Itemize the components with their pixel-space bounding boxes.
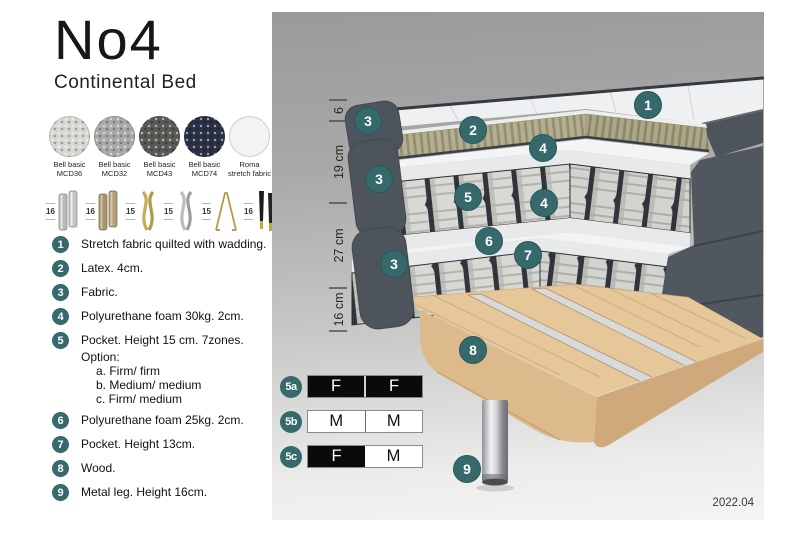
leg-height: 16 [86,200,95,223]
fabric-swatches: Bell basicMCD36 Bell basicMCD32 Bell bas… [48,116,272,178]
bed-cutaway-panel: 6 19 cm 27 cm 16 cm 1 2 3 4 3 5 4 6 7 3 … [272,12,764,520]
swatch-label: Bell basic [53,160,85,169]
firmness-table: 5a F F 5b M M 5c F M [280,375,423,480]
dimension-marks: 6 19 cm 27 cm 16 cm [329,100,347,331]
leg-height: 16 [244,200,253,223]
callout-9: 9 [454,456,481,483]
list-item: 3 Fabric. [52,284,274,301]
svg-text:7: 7 [524,247,532,263]
callout-2: 2 [460,117,487,144]
fabric-swatch: Romastretch fabric [228,116,271,178]
page-title: No4 [54,10,197,70]
leg-option-hairpin-gold: 15 [202,186,240,236]
callout-3: 3 [381,251,408,278]
dimension-label: 6 [332,107,346,114]
item-number-badge: 1 [52,236,69,253]
leg-option-cylinder-silver: 16 [46,186,82,236]
callout-8: 8 [460,337,487,364]
svg-text:3: 3 [375,171,383,187]
leg-height: 15 [164,200,173,223]
twisted-leg-icon [136,188,160,234]
callout-5: 5 [455,184,482,211]
cylinder-leg-icon [56,188,82,234]
dimension-label: 16 cm [332,292,346,326]
fabric-swatch-circle [184,116,225,157]
brand-block: No4 Continental Bed [54,10,197,94]
list-item: 1 Stretch fabric quilted with wadding. [52,236,274,253]
swatch-label: Bell basic [188,160,220,169]
firmness-bar: F F [307,375,423,398]
pocket-option: c. Firm/ medium [96,392,274,406]
list-item: 9 Metal leg. Height 16cm. [52,484,274,501]
fabric-swatch-circle [139,116,180,157]
leg-options: 16 16 15 15 15 [46,186,278,236]
svg-text:6: 6 [485,233,493,249]
firmness-bar: M M [307,410,423,433]
fabric-swatch: Bell basicMCD32 [93,116,136,178]
item-text: Stretch fabric quilted with wadding. [81,236,266,253]
svg-text:8: 8 [469,342,477,358]
item-number-badge: 7 [52,436,69,453]
swatch-label: Bell basic [143,160,175,169]
item-text: Polyurethane foam 25kg. 2cm. [81,412,244,429]
firmness-cell: M [365,411,423,432]
pocket-option: a. Firm/ firm [96,364,274,378]
firmness-cell: F [364,376,422,397]
firmness-row-5a: 5a F F [280,375,423,398]
leg-height: 15 [126,200,135,223]
svg-text:3: 3 [390,256,398,272]
list-item: 6 Polyurethane foam 25kg. 2cm. [52,412,274,429]
item-number-badge: 9 [52,484,69,501]
callout-1: 1 [635,92,662,119]
leg-height: 16 [46,200,55,223]
item-number-badge: 5 [52,332,69,349]
fabric-swatch: Bell basicMCD74 [183,116,226,178]
cylinder-leg-icon [96,188,122,234]
firmness-row-badge: 5a [280,376,302,398]
swatch-label: Bell basic [98,160,130,169]
leg-height: 15 [202,200,211,223]
callout-6: 6 [476,228,503,255]
list-item: 2 Latex. 4cm. [52,260,274,277]
list-item: 8 Wood. [52,460,274,477]
list-item: 5 Pocket. Height 15 cm. 7zones. Option: [52,332,274,366]
callout-3: 3 [366,166,393,193]
svg-text:2: 2 [469,122,477,138]
item-text: Wood. [81,460,115,477]
item-number-badge: 3 [52,284,69,301]
firmness-cell: M [365,446,422,467]
svg-text:1: 1 [644,97,652,113]
callout-4: 4 [531,190,558,217]
list-item: 4 Polyurethane foam 30kg. 2cm. [52,308,274,325]
item-number-badge: 8 [52,460,69,477]
list-item: 7 Pocket. Height 13cm. [52,436,274,453]
item-text: Metal leg. Height 16cm. [81,484,207,501]
firmness-row-5b: 5b M M [280,410,423,433]
svg-text:9: 9 [463,461,471,477]
item-number-badge: 6 [52,412,69,429]
firmness-bar: F M [307,445,423,468]
fabric-swatch-circle [229,116,270,157]
fabric-swatch: Bell basicMCD36 [48,116,91,178]
leg-option-twisted-gold: 15 [126,186,160,236]
fabric-swatch-circle [49,116,90,157]
svg-text:5: 5 [464,189,472,205]
item-text: Pocket. Height 15 cm. 7zones. Option: [81,332,274,366]
version-stamp: 2022.04 [712,497,754,509]
svg-text:4: 4 [540,195,548,211]
firmness-row-badge: 5c [280,446,302,468]
pocket-option: b. Medium/ medium [96,378,274,392]
pocket-options: a. Firm/ firm b. Medium/ medium c. Firm/… [96,364,274,406]
item-text: Latex. 4cm. [81,260,143,277]
firmness-row-badge: 5b [280,411,302,433]
item-number-badge: 2 [52,260,69,277]
dimension-label: 27 cm [332,228,346,262]
hairpin-leg-icon [212,188,240,234]
leg-option-twisted-silver: 15 [164,186,198,236]
fabric-swatch-circle [94,116,135,157]
item-text: Polyurethane foam 30kg. 2cm. [81,308,244,325]
dimension-label: 19 cm [332,145,346,179]
firmness-row-5c: 5c F M [280,445,423,468]
firmness-cell: M [308,411,365,432]
item-number-badge: 4 [52,308,69,325]
item-text: Fabric. [81,284,118,301]
swatch-label: Roma [239,160,259,169]
callout-4: 4 [530,135,557,162]
callout-3: 3 [355,108,382,135]
firmness-cell: F [308,376,364,397]
twisted-leg-icon [174,188,198,234]
item-text: Pocket. Height 13cm. [81,436,195,453]
svg-text:4: 4 [539,140,547,156]
svg-text:3: 3 [364,113,372,129]
page-subtitle: Continental Bed [54,72,197,94]
callout-7: 7 [515,242,542,269]
firmness-cell: F [308,446,365,467]
materials-list: 1 Stretch fabric quilted with wadding. 2… [52,236,274,508]
fabric-swatch: Bell basicMCD43 [138,116,181,178]
leg-option-cylinder-brass: 16 [86,186,122,236]
